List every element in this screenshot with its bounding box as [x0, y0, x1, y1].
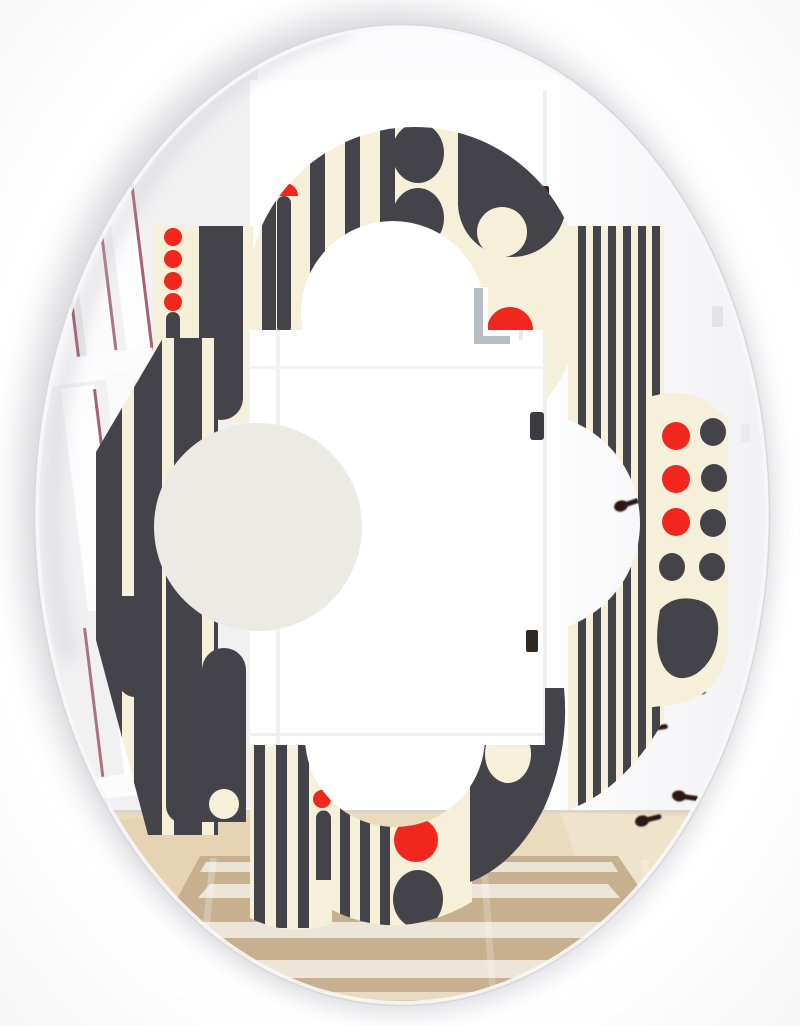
capsule-stripe — [277, 196, 291, 334]
red-half-circle-center — [487, 307, 533, 353]
right-dots-band — [646, 393, 728, 708]
wall-plate — [712, 306, 723, 327]
rounded-bar — [166, 560, 200, 823]
red-dot-column-right — [662, 422, 690, 536]
rounded-bar — [118, 596, 152, 697]
bottom-left-stripes — [250, 688, 332, 930]
red-circle — [394, 818, 438, 862]
red-dot — [313, 790, 331, 808]
bottom-center-tile — [332, 688, 472, 940]
thin-stripes — [340, 700, 390, 940]
mirror-product-image — [0, 0, 800, 1026]
charcoal-oval — [392, 123, 444, 183]
wall-plate-small — [741, 424, 750, 442]
cream-oval-cutout — [485, 725, 531, 783]
cream-dot-cutout — [209, 789, 239, 819]
product-photo-canvas — [0, 0, 800, 1026]
charcoal-oval — [392, 188, 444, 248]
